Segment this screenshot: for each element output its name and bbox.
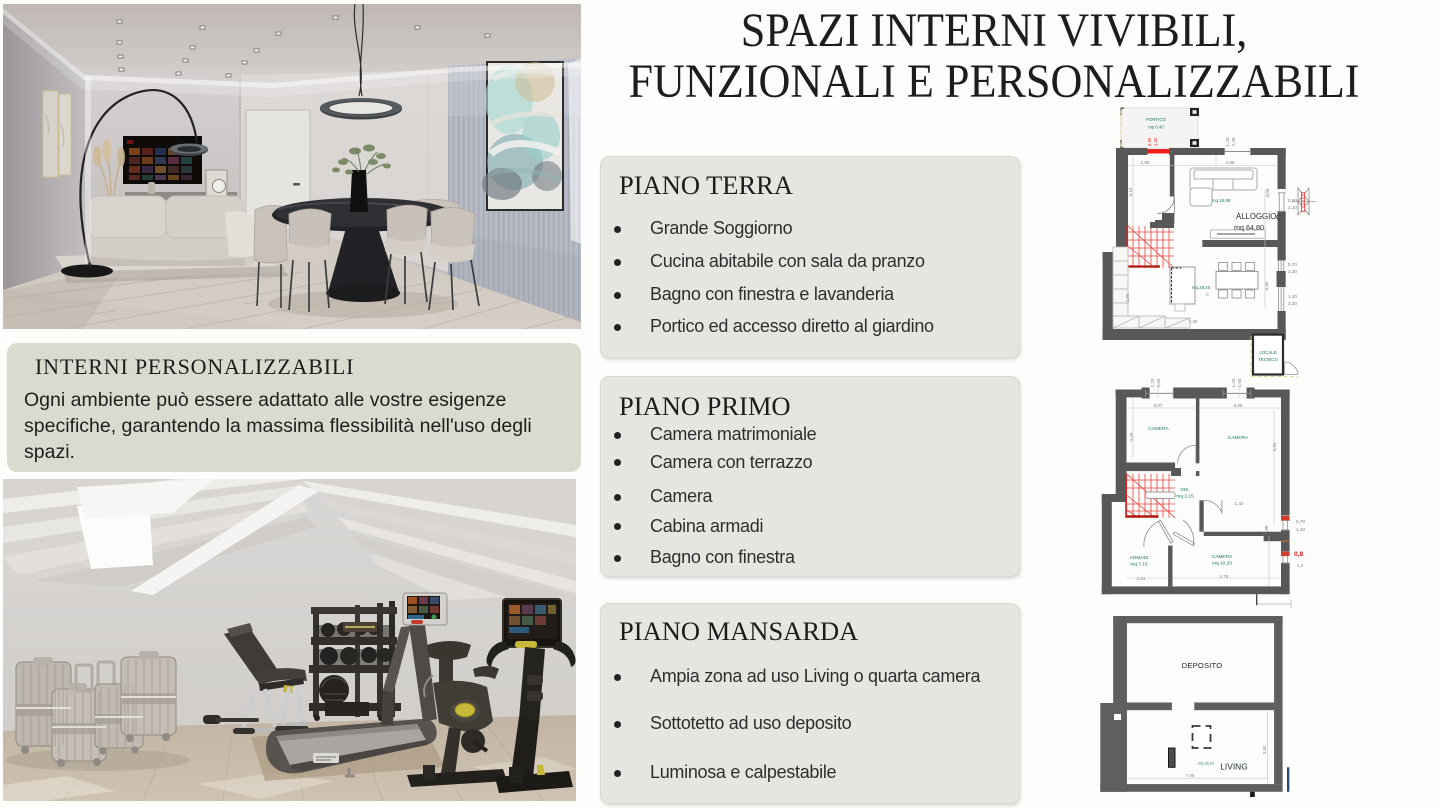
svg-text:LOCALE: LOCALE [1259,350,1276,355]
svg-text:2,30: 2,30 [1288,269,1297,274]
svg-text:1,40: 1,40 [1237,378,1242,387]
svg-text:2,25: 2,25 [1231,137,1236,146]
svg-text:CAMERA: CAMERA [1212,554,1233,560]
svg-text:3,55: 3,55 [1234,403,1243,408]
svg-text:1,20: 1,20 [1288,294,1297,299]
svg-text:LIVING: LIVING [1220,762,1247,772]
svg-text:mq 18,98: mq 18,98 [1212,198,1231,203]
svg-text:4,00: 4,00 [1265,188,1270,197]
svg-text:2,30: 2,30 [1288,301,1297,306]
svg-text:mq 64,80: mq 64,80 [1234,223,1264,232]
svg-text:CAMERA: CAMERA [1148,426,1169,432]
svg-text:1,96: 1,96 [1264,525,1269,534]
svg-text:0,90: 0,90 [1147,137,1152,146]
svg-text:3,10: 3,10 [1128,187,1133,196]
svg-text:TECNICO: TECNICO [1258,357,1278,362]
svg-text:4,95: 4,95 [1226,160,1235,165]
svg-text:0,70: 0,70 [1288,262,1297,267]
svg-text:CAMERA: CAMERA [1228,435,1249,441]
svg-text:1,42: 1,42 [1235,501,1244,506]
svg-text:7,40: 7,40 [1186,773,1195,778]
svg-text:3,90: 3,90 [1272,442,1277,451]
svg-text:1,4: 1,4 [1297,563,1304,568]
svg-text:1,20: 1,20 [1225,137,1230,146]
svg-text:0,70: 0,70 [1296,519,1305,524]
svg-text:3,84: 3,84 [1262,745,1267,754]
svg-text:ARMADI: ARMADI [1130,555,1149,561]
svg-text:mq 28,10: mq 28,10 [1198,762,1214,766]
svg-text:2,64: 2,64 [1137,576,1146,581]
svg-text:7,42: 7,42 [1189,319,1198,324]
svg-text:C: C [1206,292,1209,297]
svg-text:1,20: 1,20 [1231,378,1236,387]
svg-text:mq 10,20: mq 10,20 [1212,561,1232,567]
svg-text:1,20: 1,20 [1150,378,1155,387]
svg-text:0,8: 0,8 [1294,551,1303,558]
svg-text:3,07: 3,07 [1154,403,1163,408]
svg-text:DEPOSITO: DEPOSITO [1182,661,1223,670]
svg-text:2,10: 2,10 [1288,205,1297,210]
svg-text:mq 7,16: mq 7,16 [1130,562,1148,568]
svg-text:C: C [1276,213,1282,222]
svg-text:PORTICO: PORTICO [1146,117,1167,122]
svg-text:DIS.: DIS. [1180,487,1189,493]
svg-text:mq 6,40: mq 6,40 [1148,125,1164,130]
svg-text:2,40: 2,40 [1156,378,1161,387]
svg-text:2,80: 2,80 [1125,293,1130,302]
svg-text:mq 3,15: mq 3,15 [1176,494,1194,500]
svg-text:mq 28,40: mq 28,40 [1192,285,1211,290]
svg-text:1,95: 1,95 [1141,160,1150,165]
svg-text:1,30: 1,30 [1153,137,1158,146]
svg-text:0,90: 0,90 [1288,198,1297,203]
svg-text:ALLOGGIO: ALLOGGIO [1236,212,1276,221]
svg-text:1,40: 1,40 [1296,527,1305,532]
